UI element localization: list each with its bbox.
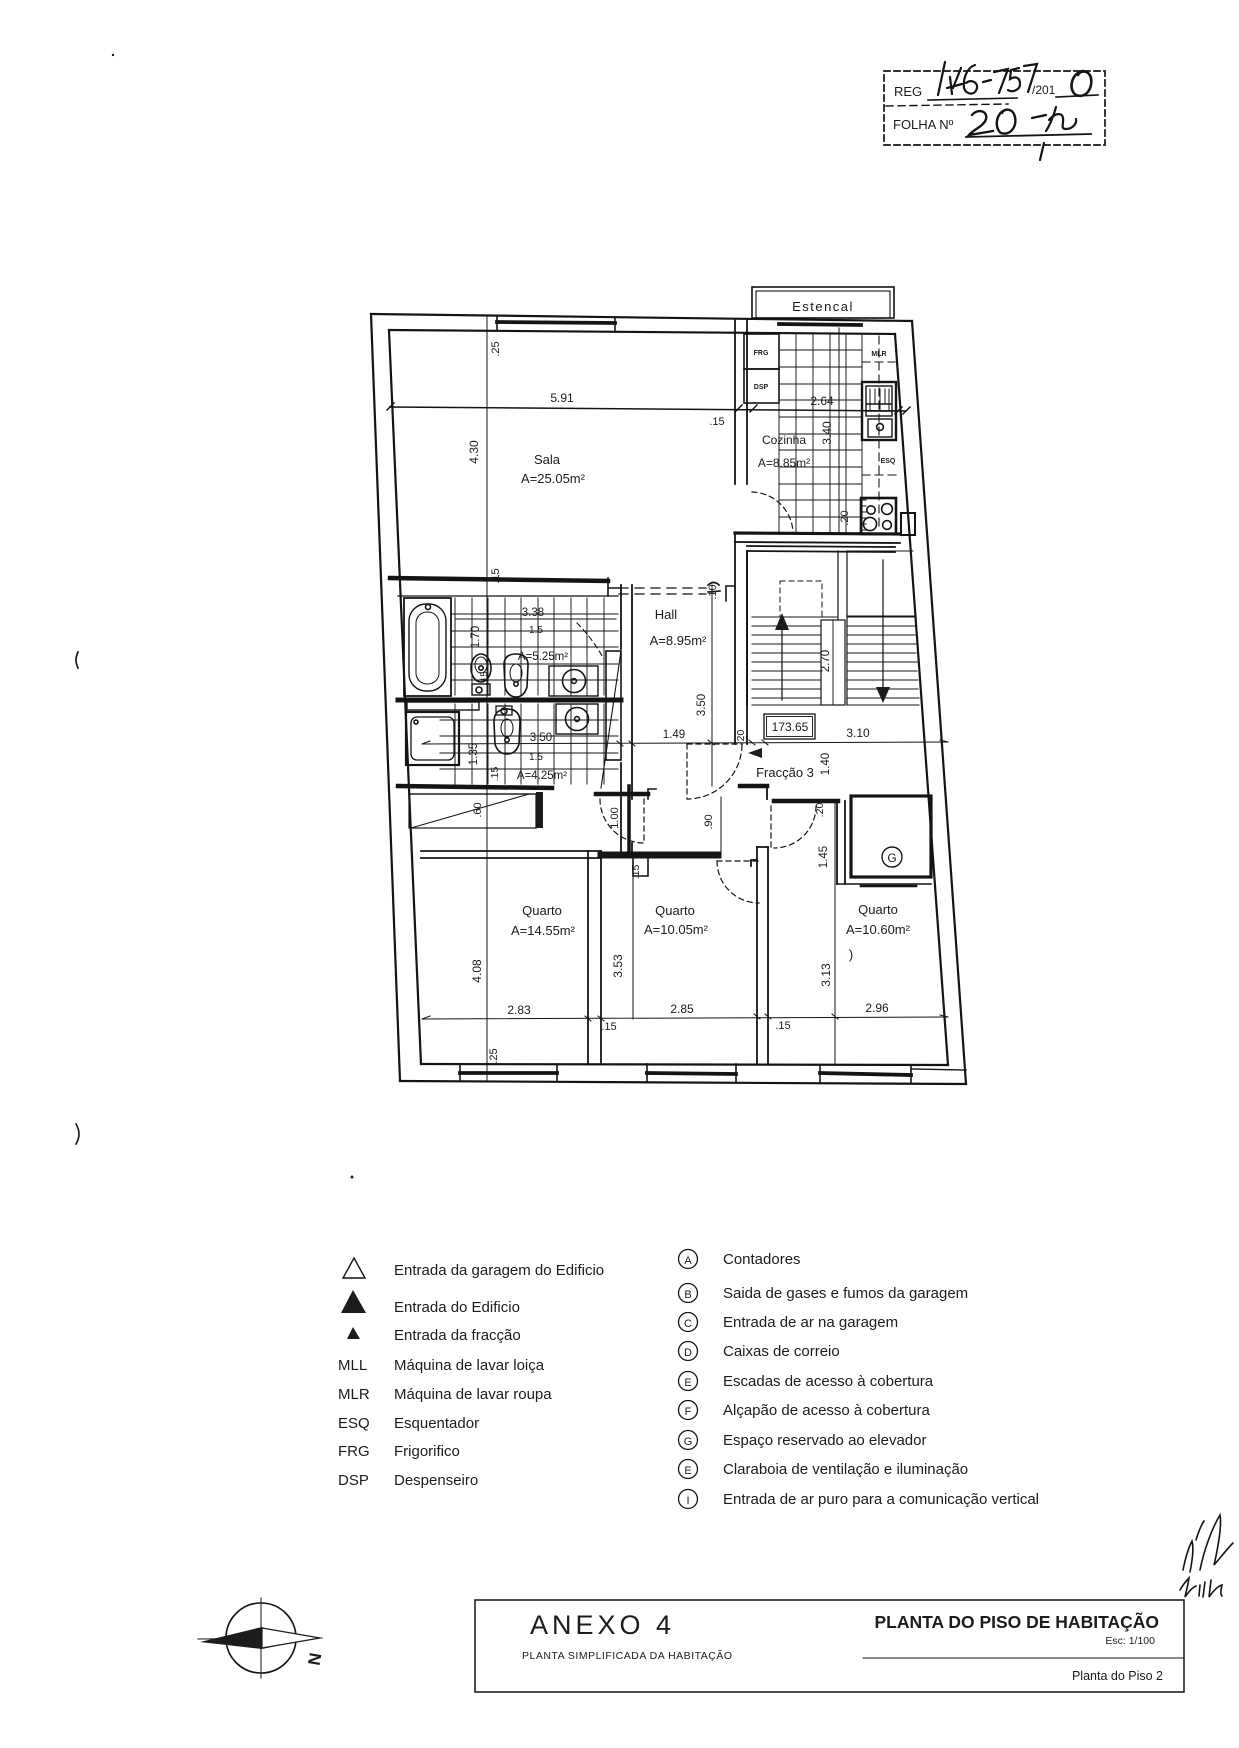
- svg-text:Caixas de correio: Caixas de correio: [723, 1343, 840, 1360]
- svg-text:1.70: 1.70: [470, 626, 482, 648]
- svg-text:F: F: [685, 1406, 692, 1418]
- svg-text:.15: .15: [479, 671, 490, 684]
- svg-text:FRG: FRG: [338, 1443, 370, 1460]
- svg-text:Contadores: Contadores: [723, 1251, 801, 1268]
- svg-text:Máquina de lavar loiça: Máquina de lavar loiça: [394, 1357, 545, 1374]
- svg-text:G: G: [684, 1436, 693, 1448]
- svg-text:Quarto: Quarto: [522, 903, 562, 918]
- svg-text:A=25.05m²: A=25.05m²: [521, 471, 586, 486]
- svg-text:DSP: DSP: [754, 384, 769, 391]
- svg-text:4.08: 4.08: [470, 959, 484, 983]
- svg-text:3.13: 3.13: [819, 963, 833, 987]
- svg-text:A=14.55m²: A=14.55m²: [511, 923, 576, 938]
- svg-text:REG: REG: [894, 84, 922, 99]
- svg-text:Quarto: Quarto: [858, 902, 898, 917]
- svg-text:A=4.25m²: A=4.25m²: [517, 770, 567, 782]
- svg-text:A=8.85m²: A=8.85m²: [758, 456, 810, 470]
- svg-text:A=5.25m²: A=5.25m²: [518, 651, 568, 663]
- svg-text:2.96: 2.96: [865, 1001, 889, 1015]
- svg-text:B: B: [684, 1289, 691, 1301]
- svg-text:.15: .15: [630, 865, 642, 880]
- svg-text:Estencal: Estencal: [792, 299, 854, 314]
- svg-text:1.5: 1.5: [529, 752, 543, 763]
- svg-text:1.5: 1.5: [529, 625, 543, 636]
- svg-text:MLR: MLR: [338, 1386, 370, 1403]
- svg-text:1.45: 1.45: [818, 846, 830, 868]
- svg-text:3.50: 3.50: [530, 732, 552, 744]
- svg-text:Fracção 3: Fracção 3: [756, 765, 814, 780]
- svg-text:.15: .15: [775, 1020, 790, 1032]
- svg-text:Entrada da fracção: Entrada da fracção: [394, 1327, 521, 1344]
- svg-text:2.83: 2.83: [507, 1003, 531, 1017]
- svg-text:A=8.95m²: A=8.95m²: [650, 633, 707, 648]
- svg-text:3.50: 3.50: [696, 694, 708, 716]
- svg-text:Entrada de ar puro para a comu: Entrada de ar puro para a comunicação ve…: [723, 1491, 1039, 1508]
- svg-text:1.40: 1.40: [820, 753, 832, 775]
- svg-text:2.85: 2.85: [670, 1002, 694, 1016]
- svg-text:): ): [849, 947, 853, 962]
- svg-text:2.70: 2.70: [820, 650, 832, 672]
- svg-text:Cozinha: Cozinha: [762, 433, 806, 447]
- svg-text:Alçapão de acesso à cobertura: Alçapão de acesso à cobertura: [723, 1402, 930, 1419]
- svg-text:.25: .25: [490, 341, 502, 356]
- svg-text:.20: .20: [839, 510, 851, 525]
- svg-text:Entrada de ar na garagem: Entrada de ar na garagem: [723, 1314, 898, 1331]
- svg-text:FRG: FRG: [754, 350, 769, 357]
- svg-text:Frigorifico: Frigorifico: [394, 1443, 460, 1460]
- svg-text:Sala: Sala: [534, 452, 561, 467]
- svg-text:3.53: 3.53: [611, 954, 625, 978]
- svg-text:E: E: [684, 1465, 691, 1477]
- svg-text:4.30: 4.30: [467, 440, 481, 464]
- svg-text:ANEXO 4: ANEXO 4: [530, 1610, 675, 1640]
- svg-text:1.00: 1.00: [609, 807, 621, 828]
- svg-text:A=10.60m²: A=10.60m²: [846, 922, 911, 937]
- svg-text:Hall: Hall: [655, 607, 678, 622]
- svg-text:5.91: 5.91: [550, 391, 574, 405]
- svg-text:Entrada do Edificio: Entrada do Edificio: [394, 1299, 520, 1316]
- svg-text:.15: .15: [601, 1021, 616, 1033]
- svg-text:.15: .15: [489, 767, 501, 782]
- svg-text:D: D: [684, 1347, 692, 1359]
- svg-text:/201: /201: [1032, 83, 1056, 97]
- svg-text:E: E: [684, 1377, 691, 1389]
- svg-text:.90: .90: [703, 814, 715, 829]
- svg-text:.20: .20: [735, 730, 747, 745]
- svg-text:173.65: 173.65: [772, 720, 809, 734]
- svg-text:MLR: MLR: [871, 351, 886, 358]
- svg-text:Espaço reservado ao elevador: Espaço reservado ao elevador: [723, 1432, 926, 1449]
- svg-text:1.35: 1.35: [468, 743, 480, 765]
- svg-text:DSP: DSP: [338, 1472, 369, 1489]
- svg-text:ESQ: ESQ: [338, 1415, 370, 1432]
- svg-text:3.40: 3.40: [820, 421, 834, 445]
- svg-text:Quarto: Quarto: [655, 903, 695, 918]
- svg-text:2.64: 2.64: [810, 394, 834, 408]
- svg-text:Claraboia de ventilação e ilum: Claraboia de ventilação e iluminação: [723, 1461, 968, 1478]
- svg-text:Planta do Piso 2: Planta do Piso 2: [1072, 1669, 1163, 1683]
- svg-text:3.38: 3.38: [522, 607, 544, 619]
- svg-text:Esc: 1/100: Esc: 1/100: [1105, 1635, 1155, 1647]
- svg-text:.15: .15: [709, 416, 724, 428]
- svg-text:Entrada da garagem do Edificio: Entrada da garagem do Edificio: [394, 1262, 604, 1279]
- svg-text:1.49: 1.49: [663, 729, 685, 741]
- svg-text:Máquina de lavar roupa: Máquina de lavar roupa: [394, 1386, 552, 1403]
- svg-text:.60: .60: [472, 802, 484, 817]
- svg-text:FOLHA Nº: FOLHA Nº: [893, 117, 954, 132]
- svg-text:A: A: [684, 1255, 692, 1267]
- svg-text:3.10: 3.10: [846, 726, 870, 740]
- svg-text:PLANTA DO PISO DE HABITAÇÃO: PLANTA DO PISO DE HABITAÇÃO: [874, 1611, 1159, 1632]
- svg-text:I: I: [686, 1495, 689, 1507]
- svg-text:.25: .25: [488, 1048, 500, 1063]
- svg-text:A=10.05m²: A=10.05m²: [644, 922, 709, 937]
- svg-text:ESQ: ESQ: [881, 458, 896, 465]
- svg-text:Despenseiro: Despenseiro: [394, 1472, 478, 1489]
- svg-text:Escadas de acesso à cobertura: Escadas de acesso à cobertura: [723, 1373, 934, 1390]
- svg-text:Saida de gases e fumos da gara: Saida de gases e fumos da garagem: [723, 1285, 968, 1302]
- svg-text:C: C: [684, 1318, 692, 1330]
- svg-text:.10: .10: [707, 584, 719, 599]
- svg-text:MLL: MLL: [338, 1357, 367, 1374]
- svg-text:PLANTA SIMPLIFICADA DA HABITAÇ: PLANTA SIMPLIFICADA DA HABITAÇÃO: [522, 1649, 733, 1662]
- svg-text:N: N: [304, 1651, 325, 1666]
- svg-text:G: G: [887, 851, 896, 865]
- svg-text:Esquentador: Esquentador: [394, 1415, 479, 1432]
